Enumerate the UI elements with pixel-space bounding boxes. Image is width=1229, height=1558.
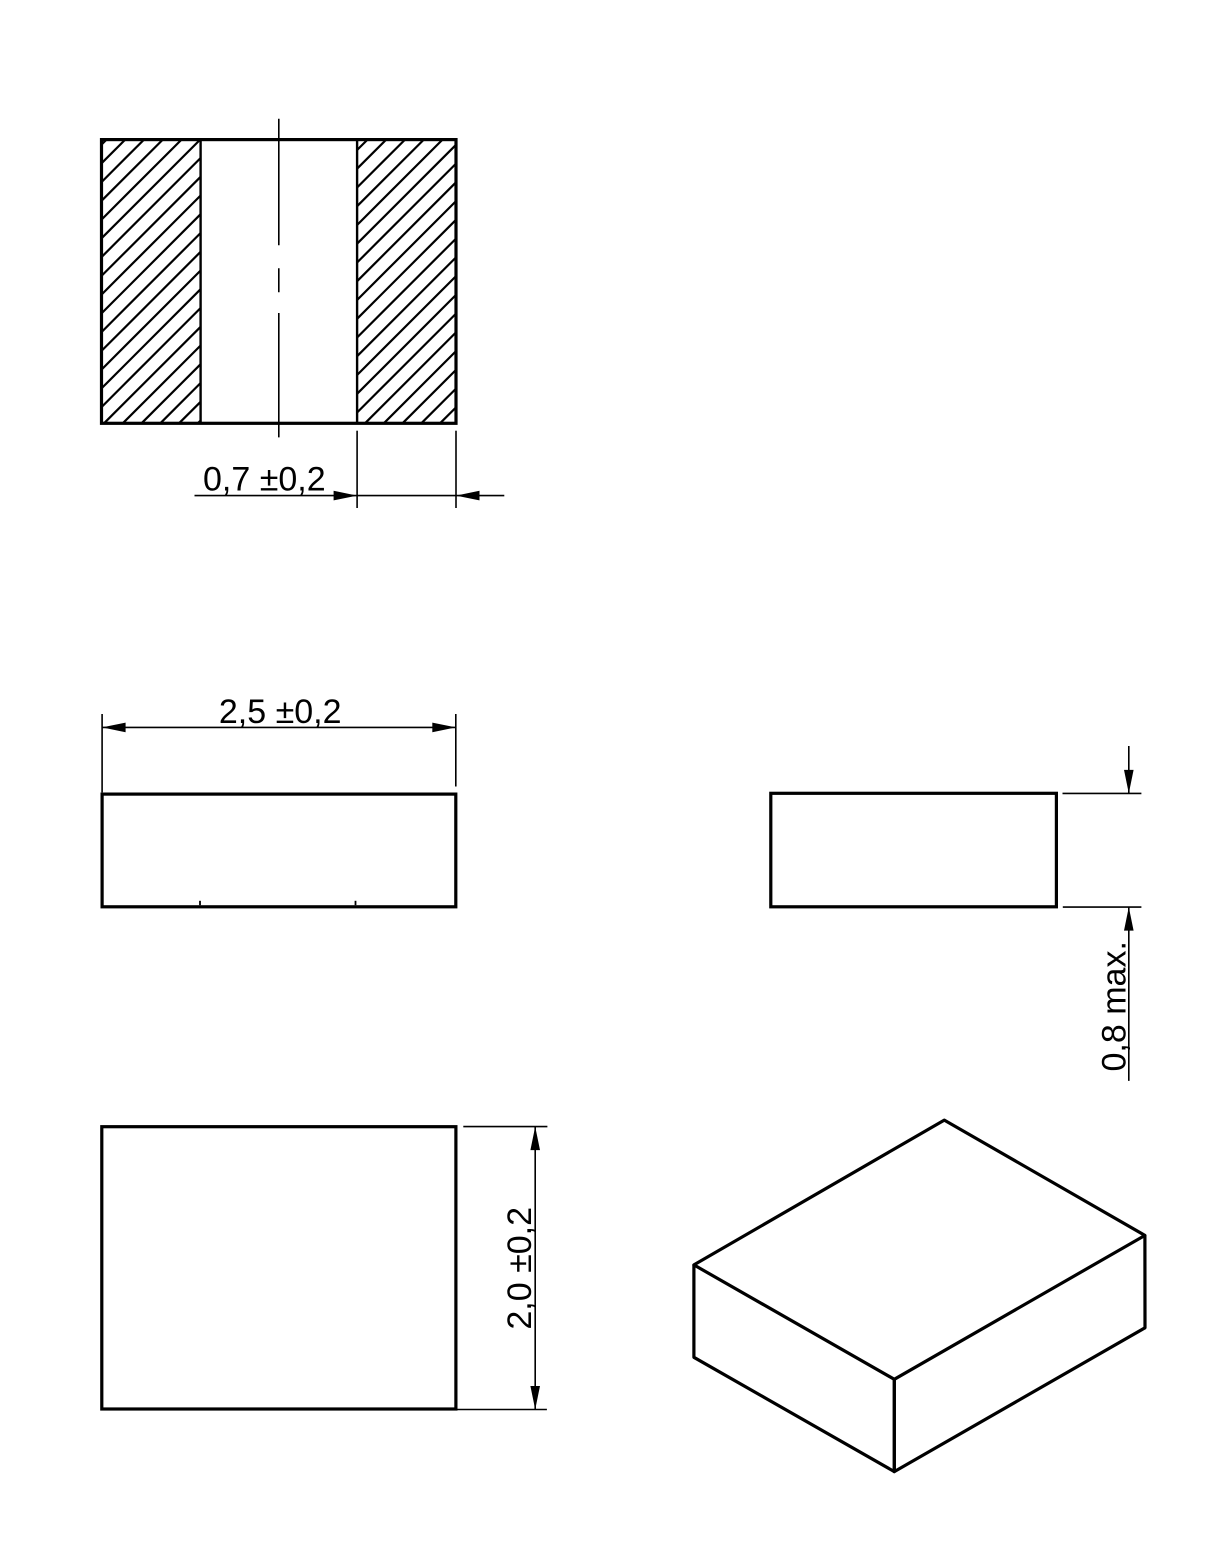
- svg-text:0,8 max.: 0,8 max.: [1095, 941, 1133, 1071]
- svg-text:2,0 ±0,2: 2,0 ±0,2: [501, 1207, 539, 1330]
- svg-text:0,7 ±0,2: 0,7 ±0,2: [203, 460, 326, 498]
- svg-text:2,5 ±0,2: 2,5 ±0,2: [219, 693, 342, 731]
